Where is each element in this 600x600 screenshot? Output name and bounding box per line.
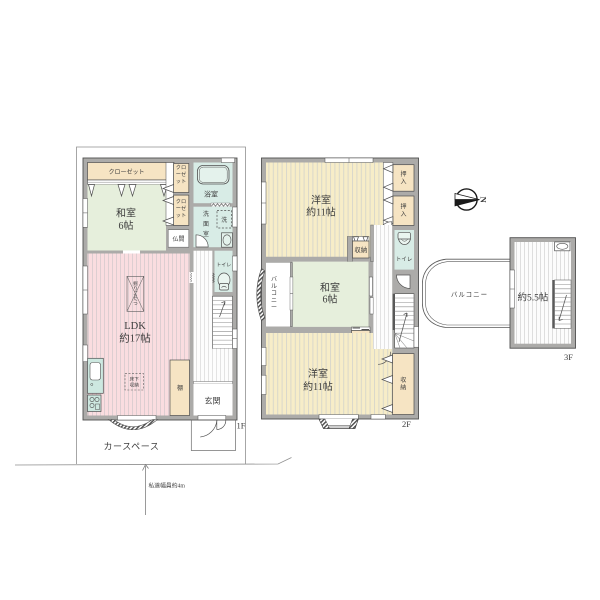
svg-text:2F: 2F [402,419,411,429]
svg-text:バ: バ [271,276,277,283]
svg-text:6帖: 6帖 [119,219,134,232]
svg-text:カースペース: カースペース [103,442,159,452]
svg-text:約11帖: 約11帖 [303,380,333,393]
svg-text:6帖: 6帖 [323,293,338,306]
svg-text:つ: つ [133,301,138,306]
svg-text:ーゼ: ーゼ [176,170,186,178]
svg-text:ニ: ニ [271,297,277,304]
svg-text:約5.5帖: 約5.5帖 [518,292,549,304]
svg-text:和室: 和室 [116,207,136,220]
svg-text:収納: 収納 [130,382,140,389]
svg-text:クロ: クロ [176,164,186,171]
svg-text:収納: 収納 [354,245,367,254]
svg-text:和室: 和室 [320,281,340,294]
svg-text:LDK: LDK [124,321,146,332]
svg-text:ット: ット [176,179,186,185]
svg-text:洗: 洗 [221,216,227,224]
svg-text:洋室: 洋室 [308,367,328,380]
svg-text:トイレ: トイレ [396,257,413,263]
svg-text:クロ: クロ [176,198,186,205]
svg-text:入: 入 [400,179,406,186]
svg-text:バルコニー: バルコニー [451,291,488,299]
svg-text:押: 押 [400,203,406,211]
svg-text:押: 押 [400,170,406,178]
svg-text:収: 収 [400,377,406,384]
svg-text:棚: 棚 [177,384,183,392]
svg-text:約11帖: 約11帖 [306,206,336,219]
svg-text:N: N [479,197,489,204]
svg-text:ー: ー [271,305,277,311]
svg-text:床下: 床下 [130,376,140,383]
svg-text:納: 納 [400,384,406,392]
svg-text:仏間: 仏間 [172,236,184,243]
svg-text:面: 面 [203,221,209,228]
svg-text:室: 室 [203,230,209,238]
svg-text:浴室: 浴室 [204,190,218,199]
svg-text:約17帖: 約17帖 [119,332,151,345]
svg-text:3F: 3F [564,352,573,362]
svg-text:トイレ: トイレ [216,263,231,269]
svg-text:1F: 1F [237,421,246,431]
svg-text:入: 入 [400,211,406,218]
svg-text:私道幅員約4m: 私道幅員約4m [149,482,186,490]
svg-text:玄関: 玄関 [205,396,221,406]
svg-text:洋室: 洋室 [311,194,331,207]
svg-text:ーゼ: ーゼ [176,204,186,212]
svg-text:洗: 洗 [203,210,209,218]
svg-text:ル: ル [271,284,277,290]
svg-text:コ: コ [271,290,277,297]
svg-text:クローゼット: クローゼット [108,168,144,176]
svg-text:ット: ット [176,213,186,219]
